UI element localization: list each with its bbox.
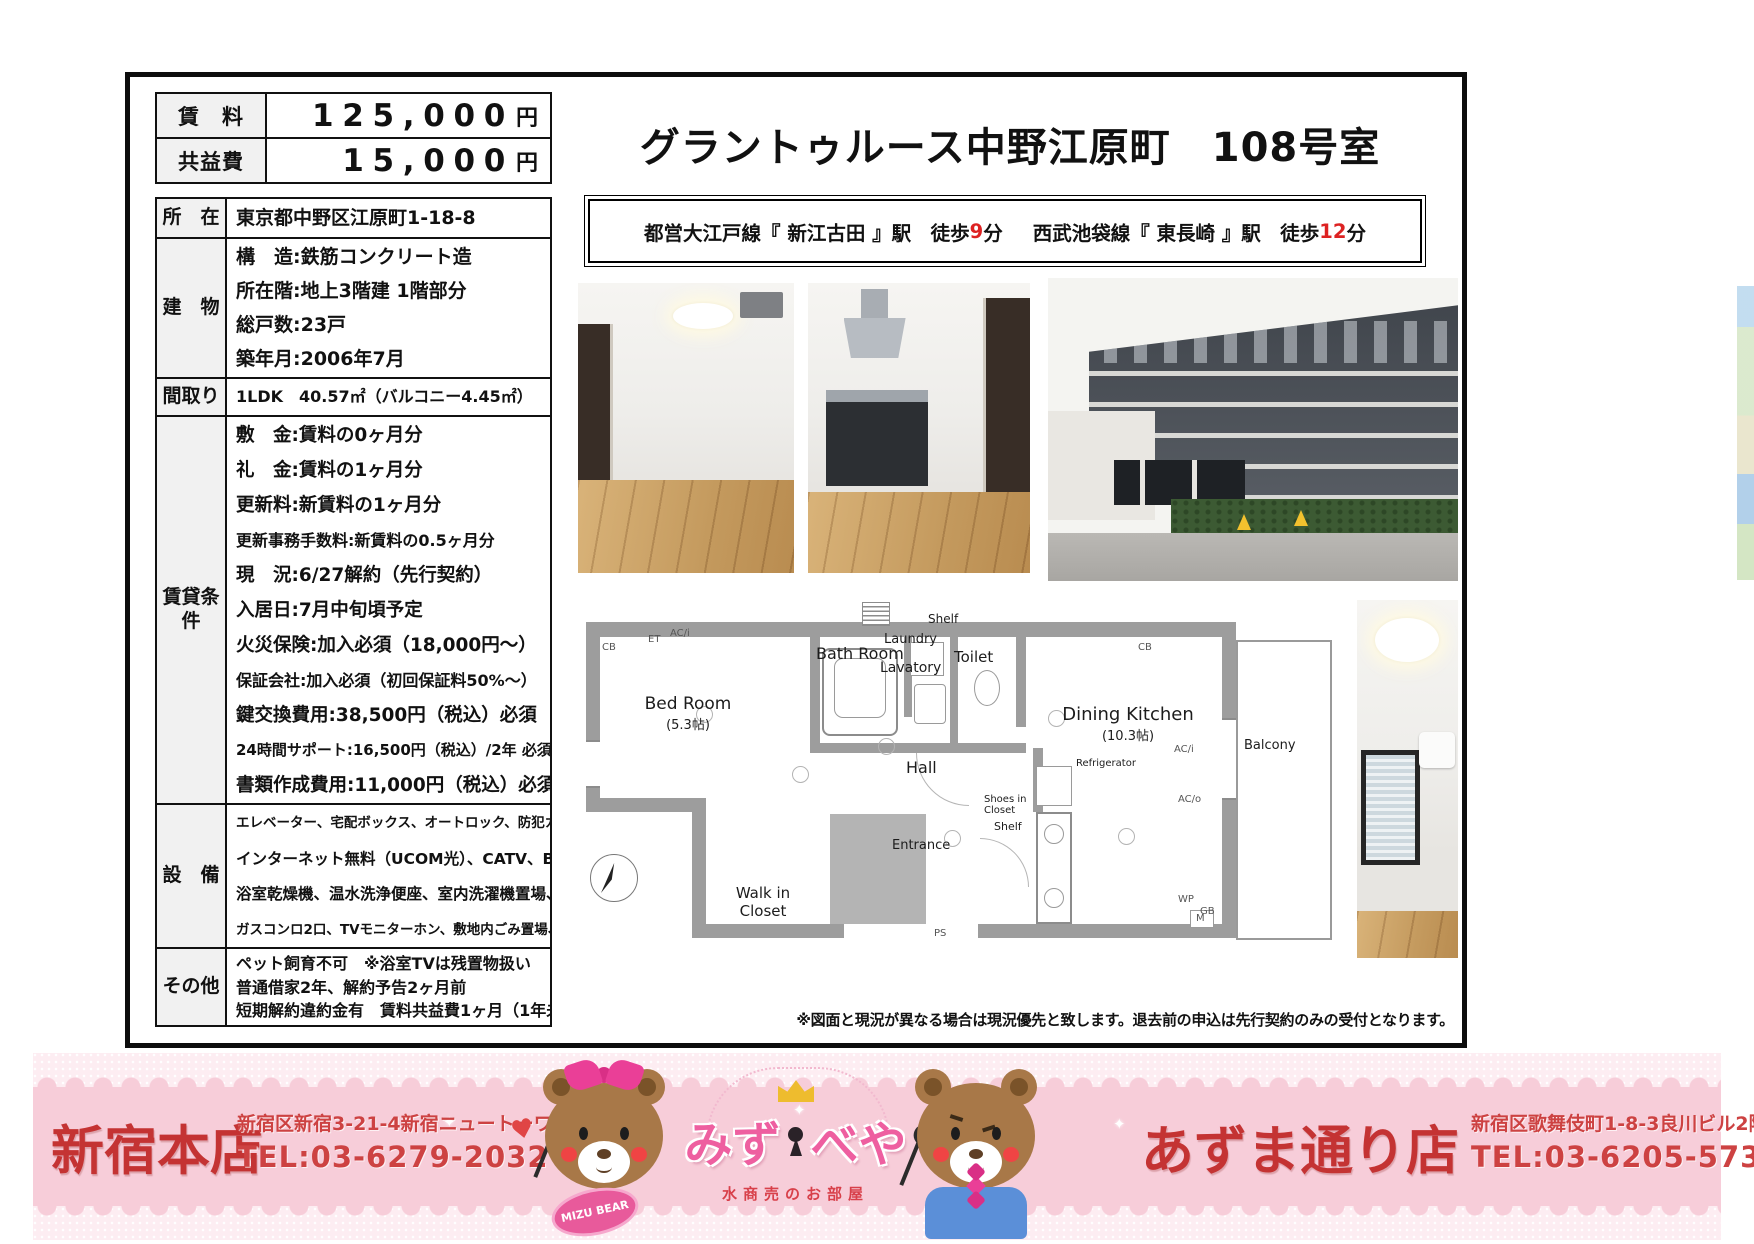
logo-wordmark: みずべや	[678, 1105, 913, 1175]
access-line1-minutes: 9	[970, 220, 984, 243]
street	[1048, 533, 1458, 581]
spec-line: ペット飼育不可 ※浴室TVは残置物扱い	[236, 952, 546, 976]
photo-building-exterior	[1048, 278, 1458, 581]
ceiling-light	[1375, 618, 1439, 662]
mascot-bear-boy	[913, 1057, 1039, 1239]
label-laundry: Laundry	[884, 632, 937, 647]
spec-value-building: 構 造:鉄筋コンクリート造 所在階:地上3階建 1階部分 総戸数:23戸 築年月…	[227, 239, 550, 377]
common-fee-label: 共益費	[157, 139, 267, 182]
spec-value-equipment: エレベーター、宅配ボックス、オートロック、防犯カメラ インターネット無料（UCO…	[227, 805, 550, 947]
spec-value-other: ペット飼育不可 ※浴室TVは残置物扱い 普通借家2年、解約予告2ヶ月前 短期解約…	[227, 949, 550, 1025]
logo-subtitle: 水商売のお部屋	[678, 1183, 913, 1204]
access-line1-unit: 分	[983, 217, 1003, 246]
bear-head	[545, 1083, 663, 1189]
store2-address: 新宿区歌舞伎町1-8-3良川ビル2階	[1471, 1109, 1754, 1136]
bear-cheeks	[561, 1147, 577, 1162]
floorplan-wall	[810, 743, 1026, 753]
spec-value-location: 東京都中野区江原町1-18-8	[227, 199, 550, 237]
label-entrance: Entrance	[892, 838, 950, 853]
access-line2-minutes: 12	[1319, 220, 1346, 243]
spec-line: 総戸数:23戸	[236, 308, 546, 342]
entrance-pillar	[1140, 460, 1145, 505]
dark-door	[983, 298, 1030, 507]
rent-label: 賃 料	[157, 94, 267, 137]
common-fee-value: 15,000 円	[267, 139, 550, 182]
ann-aco: AC/o	[1178, 794, 1201, 805]
kitchen-counter	[826, 390, 928, 402]
green-hedge	[1171, 499, 1458, 532]
common-fee-unit: 円	[516, 145, 538, 177]
sparkle-icon: ✦	[1113, 1115, 1126, 1133]
spec-row-conditions: 賃貸条件 敷 金:賃料の0ヶ月分 礼 金:賃料の1ヶ月分 更新料:新賃料の1ヶ月…	[157, 415, 550, 803]
dining-name: Dining Kitchen	[1033, 704, 1223, 725]
ann-wp: WP	[1178, 894, 1194, 905]
floorplan-stairs	[862, 602, 890, 626]
spec-line: 書類作成費用:11,000円（税込）必須	[236, 768, 546, 803]
bow-icon	[596, 1067, 612, 1083]
label-balcony: Balcony	[1244, 738, 1296, 753]
bedroom-size: (5.3帖)	[618, 714, 758, 733]
rent-amount: 125,000	[312, 98, 514, 134]
spec-line: ガスコンロ2口、TVモニターホン、敷地内ごみ置場、バルコニー	[236, 913, 546, 948]
floorplan-wall	[692, 924, 844, 938]
floor-plan: Bed Room (5.3帖) Bath Room Laundry Lavato…	[578, 598, 1338, 955]
dark-door	[578, 324, 613, 492]
spec-row-location: 所 在 東京都中野区江原町1-18-8	[157, 199, 550, 237]
spec-line: 24時間サポート:16,500円（税込）/2年 必須	[236, 733, 546, 768]
light-symbol	[878, 738, 895, 755]
walkin-line1: Walk in	[708, 884, 818, 902]
access-box: 都営大江戸線『 新江古田 』駅 徒歩9分西武池袋線『 東長崎 』駅 徒歩12分	[588, 199, 1422, 263]
store2-tel: TEL:03-6205-5732	[1471, 1140, 1754, 1174]
keyhole-icon	[784, 1125, 808, 1161]
wood-floor	[578, 480, 794, 573]
store2-info: 新宿区歌舞伎町1-8-3良川ビル2階 TEL:03-6205-5732	[1471, 1109, 1754, 1174]
spec-line: 短期解約違約金有 賃料共益費1ヶ月（1年未満）	[236, 999, 546, 1023]
light-symbol	[792, 766, 809, 783]
label-lavatory: Lavatory	[880, 660, 941, 676]
wood-floor	[808, 492, 1030, 573]
window	[1361, 750, 1420, 865]
dining-size: (10.3帖)	[1033, 725, 1223, 744]
page-title: グラントゥルース中野江原町 108号室	[580, 115, 1440, 173]
spec-line: 浴室乾燥機、温水洗浄便座、室内洗濯機置場、エアコン	[236, 877, 546, 913]
common-fee-row: 共益費 15,000 円	[157, 137, 550, 182]
lace-border-bottom	[33, 1206, 1721, 1222]
kitchen-sink	[1044, 824, 1064, 844]
label-shelf-2: Shelf	[994, 820, 1022, 833]
bear-muzzle	[578, 1141, 630, 1183]
disclaimer-note: ※図面と現況が異なる場合は現況優先と致します。退去前の申込は先行契約のみの受付と…	[710, 1009, 1454, 1030]
bear-eyes	[951, 1127, 960, 1140]
floorplan-void-block	[830, 814, 926, 924]
spec-label-other: その他	[157, 949, 227, 1025]
traffic-cone	[1294, 510, 1308, 526]
label-bedroom: Bed Room (5.3帖)	[618, 694, 758, 733]
access-line2-unit: 分	[1346, 217, 1366, 246]
spec-label-building: 建 物	[157, 239, 227, 377]
price-table: 賃 料 125,000 円 共益費 15,000 円	[155, 92, 552, 184]
ann-ps: PS	[934, 928, 946, 939]
spec-row-building: 建 物 構 造:鉄筋コンクリート造 所在階:地上3階建 1階部分 総戸数:23戸…	[157, 237, 550, 377]
compass-needle	[601, 863, 625, 893]
rent-row: 賃 料 125,000 円	[157, 94, 550, 137]
photo-room-corner	[1357, 600, 1458, 958]
spec-table: 所 在 東京都中野区江原町1-18-8 建 物 構 造:鉄筋コンクリート造 所在…	[155, 197, 552, 1027]
kitchen-cabinets	[826, 399, 928, 486]
map-strip	[1737, 286, 1754, 580]
ann-cb: CB	[1138, 642, 1152, 653]
air-conditioner	[1419, 732, 1455, 768]
door-swing-arc	[980, 838, 1029, 887]
spec-row-other: その他 ペット飼育不可 ※浴室TVは残置物扱い 普通借家2年、解約予告2ヶ月前 …	[157, 947, 550, 1025]
spec-line: 入居日:7月中旬頃予定	[236, 593, 546, 628]
store1-name: 新宿本店	[51, 1109, 263, 1185]
spec-value-layout: 1LDK 40.57㎡（バルコニー4.45㎡）	[227, 379, 550, 415]
range-hood	[844, 318, 906, 359]
window-glass	[1366, 755, 1415, 860]
spec-label-location: 所 在	[157, 199, 227, 237]
floorplan-window	[586, 740, 600, 788]
spec-line: 鍵交換費用:38,500円（税込）必須	[236, 698, 546, 733]
rent-value: 125,000 円	[267, 94, 550, 137]
traffic-cone	[1237, 514, 1251, 530]
label-hall: Hall	[906, 758, 937, 777]
ann-cb: CB	[602, 642, 616, 653]
floorplan-window	[1222, 718, 1236, 800]
store2-name: あずま通り店	[1141, 1109, 1459, 1185]
access-line2-text: 西武池袋線『 東長崎 』駅 徒歩	[1033, 217, 1320, 246]
spec-line: エレベーター、宅配ボックス、オートロック、防犯カメラ	[236, 806, 546, 842]
rent-unit: 円	[516, 100, 538, 132]
spec-line: 東京都中野区江原町1-18-8	[236, 200, 546, 236]
mascot-bear-girl: MIZU BEAR	[541, 1057, 667, 1239]
spec-label-equipment: 設 備	[157, 805, 227, 947]
floorplan-balcony-area	[1236, 640, 1332, 940]
compass-icon	[590, 854, 638, 902]
photo-living-room	[578, 283, 794, 573]
spec-row-layout: 間取り 1LDK 40.57㎡（バルコニー4.45㎡）	[157, 377, 550, 415]
spec-line: インターネット無料（UCOM光）、CATV、BS/110°CS	[236, 842, 546, 878]
floorplan-wall	[1016, 637, 1026, 727]
spec-line: 現 況:6/27解約（先行契約）	[236, 558, 546, 593]
label-shoes-closet: Shoes in Closet	[984, 794, 1032, 816]
bathtub-inner	[834, 658, 886, 718]
spec-line: 1LDK 40.57㎡（バルコニー4.45㎡）	[236, 380, 546, 414]
shop-logo: みずべや 水商売のお部屋	[678, 1081, 913, 1204]
ann-et: ET	[648, 634, 660, 645]
label-refrigerator: Refrigerator	[1076, 758, 1136, 769]
floorplan-wall	[586, 798, 706, 812]
spec-line: 所在階:地上3階建 1階部分	[236, 274, 546, 308]
light-symbol	[1118, 828, 1135, 845]
bedroom-name: Bed Room	[618, 694, 758, 714]
label-toilet: Toilet	[954, 648, 993, 666]
photo-kitchen	[808, 283, 1030, 573]
footer-banner: ✦ ✦ ✦ 新宿本店 新宿区新宿3-21-4新宿ニュートーワビル1階 TEL:0…	[33, 1053, 1721, 1240]
label-walkin-closet: Walk in Closet	[708, 884, 818, 920]
spec-line: 火災保険:加入必須（18,000円～）	[236, 628, 546, 663]
label-shelf: Shelf	[928, 612, 958, 626]
logo-part2: べや	[811, 1117, 907, 1173]
spec-label-layout: 間取り	[157, 379, 227, 415]
spec-line: 保証会社:加入必須（初回保証料50%～）	[236, 663, 546, 698]
refrigerator-space	[1036, 766, 1072, 806]
label-dining-kitchen: Dining Kitchen (10.3帖)	[1033, 704, 1223, 744]
spec-line: 敷 金:賃料の0ヶ月分	[236, 418, 546, 453]
spec-line: 普通借家2年、解約予告2ヶ月前	[236, 976, 546, 1000]
mizu-bear-badge: MIZU BEAR	[547, 1180, 643, 1243]
wood-floor	[1357, 911, 1458, 958]
bear-eyes	[579, 1127, 588, 1140]
walkin-line2: Closet	[708, 902, 818, 920]
floorplan-wall	[692, 798, 706, 938]
access-line1-text: 都営大江戸線『 新江古田 』駅 徒歩	[644, 217, 970, 246]
lavatory-sink	[914, 684, 946, 724]
spec-line: 礼 金:賃料の1ヶ月分	[236, 453, 546, 488]
ann-aci: AC/i	[1174, 744, 1194, 755]
ann-m: M	[1196, 913, 1205, 924]
spec-row-equipment: 設 備 エレベーター、宅配ボックス、オートロック、防犯カメラ インターネット無料…	[157, 803, 550, 947]
common-fee-amount: 15,000	[342, 143, 514, 179]
kitchen-burner	[1044, 888, 1064, 908]
ann-aci: AC/i	[670, 628, 690, 639]
bear-outfit	[925, 1187, 1027, 1239]
spec-line: 更新事務手数料:新賃料の0.5ヶ月分	[236, 523, 546, 558]
air-vent	[740, 292, 783, 318]
logo-part1: みず	[684, 1117, 780, 1173]
spec-value-conditions: 敷 金:賃料の0ヶ月分 礼 金:賃料の1ヶ月分 更新料:新賃料の1ヶ月分 更新事…	[227, 417, 550, 803]
bear-cheeks	[933, 1147, 949, 1162]
spec-line: 構 造:鉄筋コンクリート造	[236, 240, 546, 274]
spec-line: 築年月:2006年7月	[236, 342, 546, 376]
spec-line: 更新料:新賃料の1ヶ月分	[236, 488, 546, 523]
hood-duct	[861, 289, 888, 318]
toilet-bowl	[974, 670, 1000, 706]
flyer-main-box: 賃 料 125,000 円 共益費 15,000 円 所 在 東京都中野区江原町…	[125, 72, 1467, 1048]
spec-label-conditions: 賃貸条件	[157, 417, 227, 803]
bear-eyebrows	[950, 1114, 964, 1122]
